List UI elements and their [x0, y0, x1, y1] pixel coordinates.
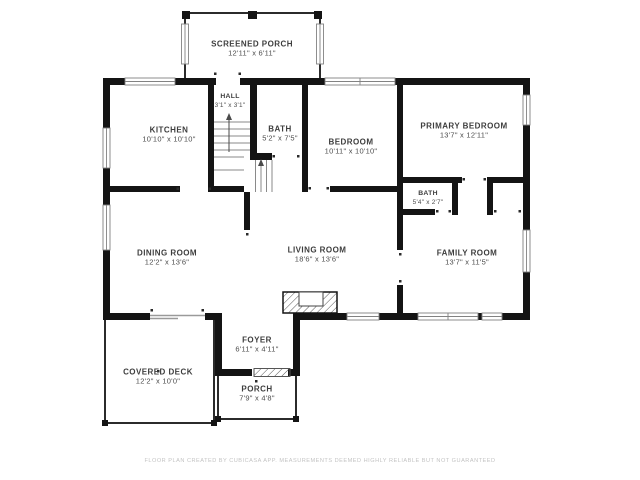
room-name: SCREENED PORCH: [211, 40, 293, 49]
outer-walls: [103, 78, 530, 320]
front-door: [254, 369, 290, 377]
room-label-family-room: FAMILY ROOM 13'7" x 11'5": [437, 249, 498, 268]
room-label-bath2: BATH 5'4" x 2'7": [413, 190, 444, 206]
room-name: BATH: [413, 190, 444, 198]
room-label-bath: BATH 5'2" x 7'5": [262, 125, 298, 144]
room-label-hall: HALL 3'1" x 3'1": [215, 93, 246, 109]
room-name: PRIMARY BEDROOM: [420, 122, 507, 131]
deck-door: [150, 316, 205, 319]
windows: [103, 78, 530, 320]
room-dims: 13'7" x 11'5": [437, 259, 498, 268]
room-dims: 7'9" x 4'8": [239, 395, 275, 404]
room-name: COVERED DECK: [123, 368, 193, 377]
room-name: LIVING ROOM: [288, 246, 347, 255]
room-dims: 6'11" x 4'11": [235, 346, 278, 355]
room-name: DINING ROOM: [137, 249, 197, 258]
room-dims: 12'2" x 10'0": [123, 378, 193, 387]
room-dims: 5'4" x 2'7": [413, 199, 444, 206]
room-label-covered-deck: COVERED DECK 12'2" x 10'0": [123, 368, 193, 387]
room-dims: 18'6" x 13'6": [288, 256, 347, 265]
room-dims: 12'2" x 13'6": [137, 259, 197, 268]
room-label-foyer: FOYER 6'11" x 4'11": [235, 336, 278, 355]
room-name: BEDROOM: [325, 138, 378, 147]
room-dims: 13'7" x 12'11": [420, 132, 507, 141]
floor-plan-drawing: [0, 0, 640, 480]
room-dims: 5'2" x 7'5": [262, 135, 298, 144]
room-name: PORCH: [239, 385, 275, 394]
room-label-kitchen: KITCHEN 10'10" x 10'10": [142, 126, 195, 145]
room-name: FAMILY ROOM: [437, 249, 498, 258]
room-label-screened-porch: SCREENED PORCH 12'11" x 6'11": [211, 40, 293, 59]
room-name: BATH: [262, 125, 298, 134]
door-marks: [151, 73, 522, 383]
room-dims: 3'1" x 3'1": [215, 102, 246, 109]
floor-plan-canvas: SCREENED PORCH 12'11" x 6'11" HALL 3'1" …: [0, 0, 640, 480]
room-label-bedroom: BEDROOM 10'11" x 10'10": [325, 138, 378, 157]
room-name: KITCHEN: [142, 126, 195, 135]
room-name: FOYER: [235, 336, 278, 345]
room-name: HALL: [215, 93, 246, 101]
room-dims: 12'11" x 6'11": [211, 50, 293, 59]
room-label-living-room: LIVING ROOM 18'6" x 13'6": [288, 246, 347, 265]
disclaimer-text: FLOOR PLAN CREATED BY CUBICASA APP. MEAS…: [0, 458, 640, 464]
room-dims: 10'10" x 10'10": [142, 136, 195, 145]
room-dims: 10'11" x 10'10": [325, 148, 378, 157]
room-label-dining-room: DINING ROOM 12'2" x 13'6": [137, 249, 197, 268]
room-label-porch: PORCH 7'9" x 4'8": [239, 385, 275, 404]
room-label-primary-bedroom: PRIMARY BEDROOM 13'7" x 12'11": [420, 122, 507, 141]
fireplace: [283, 292, 337, 313]
